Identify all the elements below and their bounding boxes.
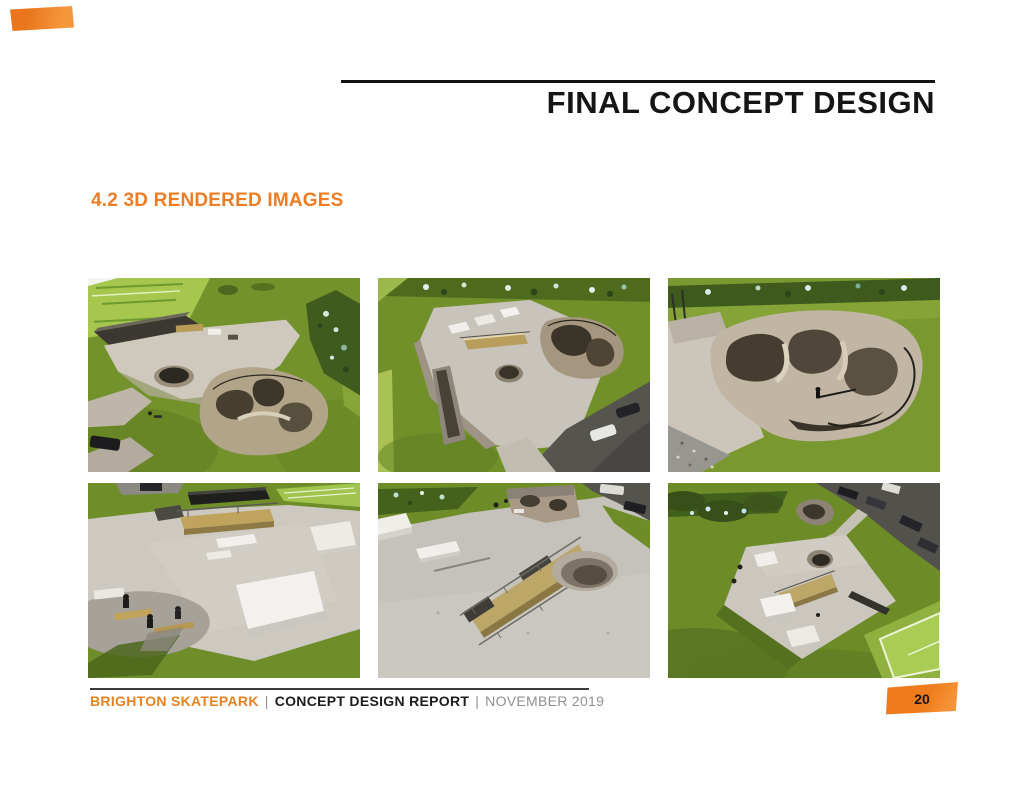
title-rule <box>341 80 935 83</box>
render-gallery <box>88 278 940 678</box>
page-number-badge: 20 <box>886 682 958 715</box>
render-image-6 <box>668 483 940 678</box>
render-image-3 <box>668 278 940 472</box>
footer-separator: | <box>469 693 485 709</box>
report-page: FINAL CONCEPT DESIGN 4.2 3D RENDERED IMA… <box>0 0 1024 791</box>
render-image-2 <box>378 278 650 472</box>
render-image-5 <box>378 483 650 678</box>
footer-separator: | <box>259 693 275 709</box>
corner-ribbon <box>10 6 74 31</box>
page-title: FINAL CONCEPT DESIGN <box>547 85 935 121</box>
page-number: 20 <box>914 691 930 707</box>
footer-date: NOVEMBER 2019 <box>485 693 604 709</box>
render-image-1 <box>88 278 360 472</box>
footer-project: BRIGHTON SKATEPARK <box>90 693 259 709</box>
footer-text: BRIGHTON SKATEPARK|CONCEPT DESIGN REPORT… <box>90 693 604 709</box>
footer-report-title: CONCEPT DESIGN REPORT <box>275 693 470 709</box>
section-heading: 4.2 3D RENDERED IMAGES <box>91 190 344 212</box>
footer-rule <box>90 688 589 690</box>
render-image-4 <box>88 483 360 678</box>
